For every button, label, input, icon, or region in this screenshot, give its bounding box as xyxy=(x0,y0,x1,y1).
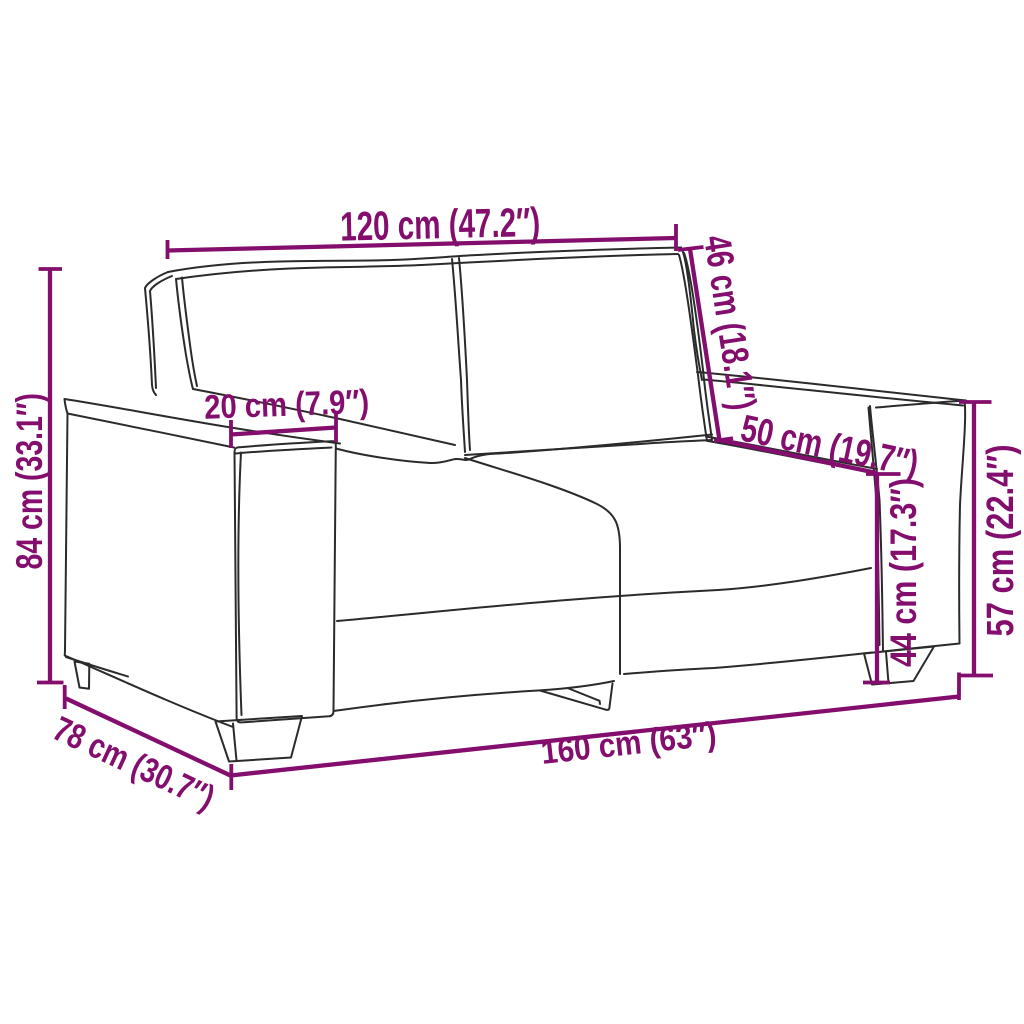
svg-text:57 cm (22.4″): 57 cm (22.4″) xyxy=(980,445,1022,637)
svg-text:44 cm (17.3″): 44 cm (17.3″) xyxy=(883,478,924,667)
svg-text:20 cm (7.9″): 20 cm (7.9″) xyxy=(204,383,370,427)
svg-text:84 cm (33.1″): 84 cm (33.1″) xyxy=(9,393,50,570)
svg-text:120 cm (47.2″): 120 cm (47.2″) xyxy=(340,199,541,250)
